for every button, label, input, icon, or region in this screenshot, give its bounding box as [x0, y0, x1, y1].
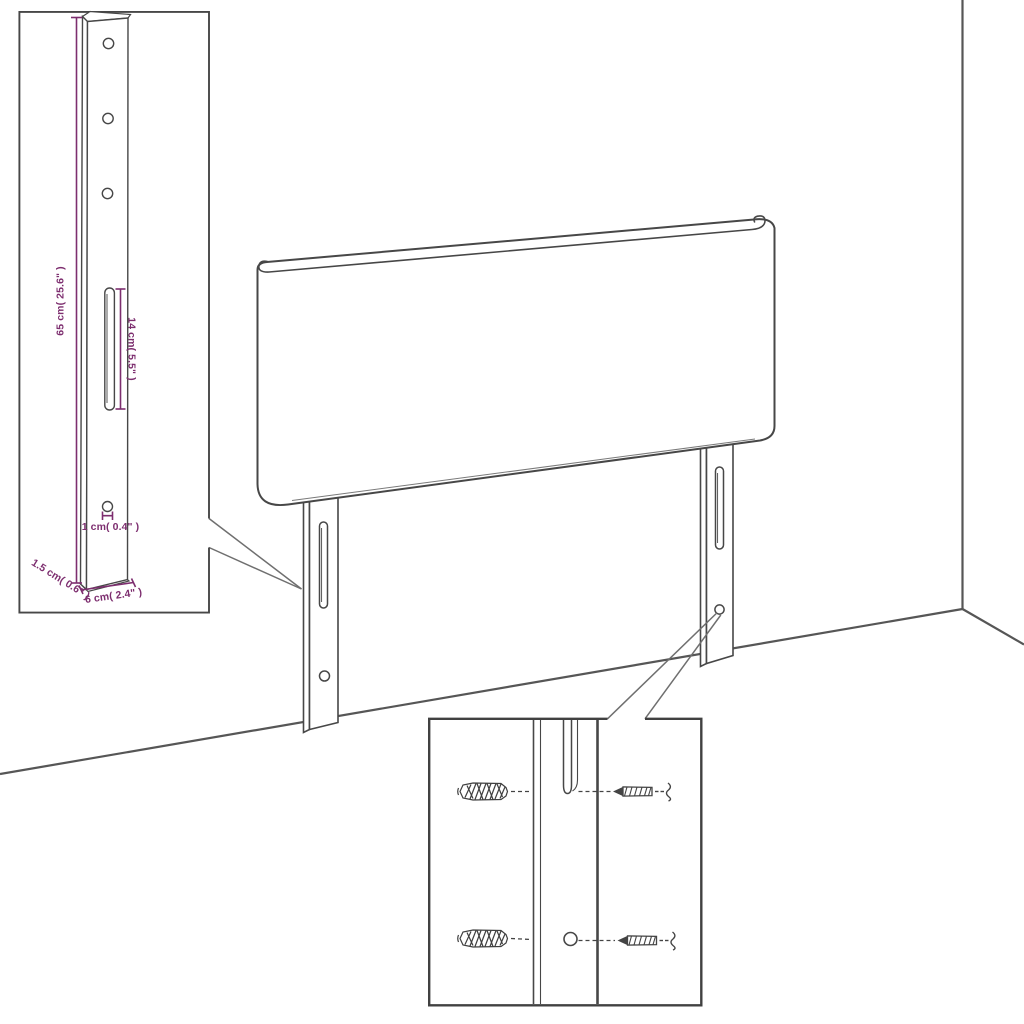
hole-diameter-dimension-label: 1 cm( 0.4" )	[82, 521, 140, 533]
headboard-panel	[258, 216, 775, 505]
floor-line-right	[963, 609, 1024, 645]
closeup-slot	[564, 720, 572, 794]
inset-callout-wedge-left	[209, 519, 302, 590]
dashed-line	[511, 939, 532, 940]
height-dimension-label: 65 cm( 25.6" )	[55, 266, 67, 335]
headboard-left-leg	[304, 486, 339, 733]
wall-plug-anchor-top	[458, 783, 508, 800]
hardware-detail-inset	[429, 719, 701, 1006]
slot-length-dimension-label: 14 cm( 5.5" )	[126, 317, 138, 380]
leg-post-drawing	[81, 12, 131, 592]
product-dimension-diagram: 65 cm( 25.6" ) 14 cm( 5.5" ) 1 cm( 0.4" …	[0, 0, 1024, 1024]
diagram-canvas: 65 cm( 25.6" ) 14 cm( 5.5" ) 1 cm( 0.4" …	[0, 0, 1024, 1024]
left-leg-side-face	[304, 488, 310, 733]
closeup-hole	[564, 933, 577, 946]
hardware-inset-border	[429, 719, 701, 1006]
closeup-slot-depth-line	[573, 720, 578, 791]
headboard-right-leg	[701, 434, 734, 667]
leg-closeup-drawing	[534, 720, 598, 1004]
mounting-screw-top	[613, 783, 671, 801]
wall-plug-anchor-bottom	[458, 930, 508, 947]
alignment-dashed-lines	[511, 792, 615, 941]
floor-line-left	[0, 609, 963, 774]
callout-line	[645, 615, 721, 719]
right-leg-side-face	[701, 436, 707, 667]
panel-outline	[258, 219, 775, 505]
leg-dimension-inset: 65 cm( 25.6" ) 14 cm( 5.5" ) 1 cm( 0.4" …	[19, 12, 209, 613]
mounting-screw-bottom	[618, 932, 676, 950]
